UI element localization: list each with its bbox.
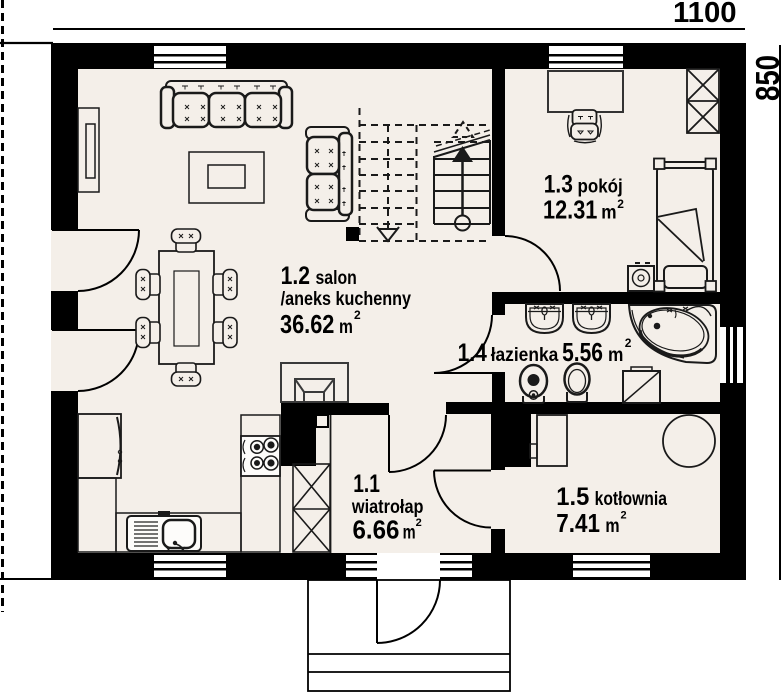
svg-text:1.2: 1.2 (281, 262, 310, 290)
svg-text:2: 2 (617, 197, 624, 211)
svg-text:2: 2 (354, 308, 361, 322)
svg-text:pokój: pokój (578, 176, 623, 198)
svg-text:1.5: 1.5 (556, 483, 589, 511)
svg-text:1.4: 1.4 (458, 339, 487, 367)
svg-text:salon: salon (316, 267, 357, 289)
svg-text:kotłownia: kotłownia (595, 488, 668, 510)
svg-text:12.31: 12.31 (543, 197, 597, 225)
svg-text:m: m (608, 344, 623, 366)
svg-text:2: 2 (416, 517, 422, 529)
svg-text:6.66: 6.66 (353, 517, 400, 545)
svg-text:m: m (339, 316, 353, 338)
svg-text:m: m (601, 202, 616, 224)
svg-text:m: m (605, 515, 619, 537)
svg-text:850: 850 (749, 55, 784, 101)
svg-text:1.3: 1.3 (544, 171, 573, 199)
svg-text:36.62: 36.62 (280, 311, 334, 339)
svg-text:łazienka: łazienka (491, 344, 559, 366)
svg-text:m: m (403, 522, 416, 544)
svg-text:2: 2 (621, 509, 627, 521)
svg-text:wiatrołap: wiatrołap (351, 496, 424, 518)
svg-text:1.1: 1.1 (353, 470, 380, 498)
svg-text:/aneks kuchenny: /aneks kuchenny (281, 288, 412, 310)
svg-text:2: 2 (625, 336, 632, 350)
svg-text:1100: 1100 (673, 0, 737, 29)
svg-text:7.41: 7.41 (556, 510, 600, 538)
svg-text:5.56: 5.56 (562, 339, 603, 367)
